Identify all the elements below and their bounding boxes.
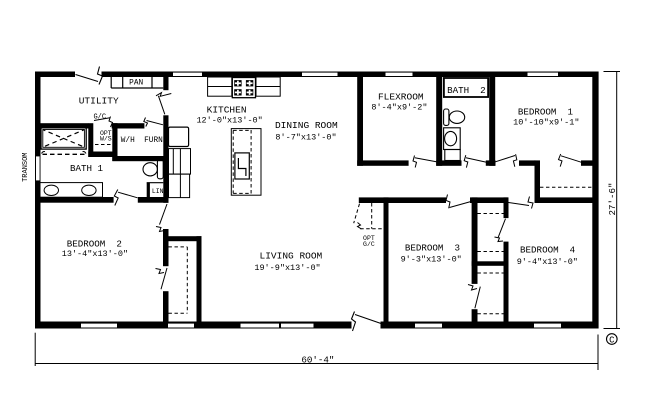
svg-text:FLEXROOM: FLEXROOM	[378, 91, 424, 102]
svg-text:DINING ROOM: DINING ROOM	[275, 120, 338, 131]
svg-text:KITCHEN: KITCHEN	[207, 104, 247, 115]
svg-text:BATH 2: BATH 2	[447, 85, 486, 96]
svg-text:27'-6": 27'-6"	[607, 182, 618, 215]
svg-text:LIVING ROOM: LIVING ROOM	[260, 251, 323, 262]
svg-text:8'-7"x13'-0": 8'-7"x13'-0"	[275, 132, 336, 142]
svg-text:PAN: PAN	[129, 80, 143, 88]
svg-text:G/C: G/C	[363, 241, 375, 248]
svg-text:BEDROOM 1: BEDROOM 1	[518, 106, 574, 117]
svg-text:60'-4": 60'-4"	[301, 355, 334, 366]
svg-text:LIN: LIN	[152, 188, 164, 195]
svg-text:TRANSOM: TRANSOM	[22, 152, 30, 181]
svg-text:10'-10"x9'-1": 10'-10"x9'-1"	[513, 118, 579, 128]
svg-text:BATH 1: BATH 1	[70, 163, 104, 174]
svg-text:UTILITY: UTILITY	[79, 95, 119, 106]
svg-text:BEDROOM 2: BEDROOM 2	[67, 239, 122, 250]
svg-text:12'-0"x13'-0": 12'-0"x13'-0"	[196, 115, 262, 125]
svg-text:BEDROOM 3: BEDROOM 3	[405, 243, 460, 254]
svg-text:G/C: G/C	[93, 113, 106, 121]
svg-text:BEDROOM 4: BEDROOM 4	[520, 245, 576, 256]
svg-text:W/H FURN: W/H FURN	[121, 137, 163, 145]
svg-text:8'-4"x9'-2": 8'-4"x9'-2"	[371, 102, 427, 112]
svg-text:13'-4"x13'-0": 13'-4"x13'-0"	[62, 249, 128, 259]
svg-text:19'-9"x13'-0": 19'-9"x13'-0"	[254, 263, 320, 273]
svg-text:C: C	[609, 335, 615, 345]
svg-text:W/S: W/S	[100, 135, 112, 142]
svg-text:9'-4"x13'-0": 9'-4"x13'-0"	[517, 257, 578, 267]
svg-text:9'-3"x13'-0": 9'-3"x13'-0"	[401, 255, 462, 265]
